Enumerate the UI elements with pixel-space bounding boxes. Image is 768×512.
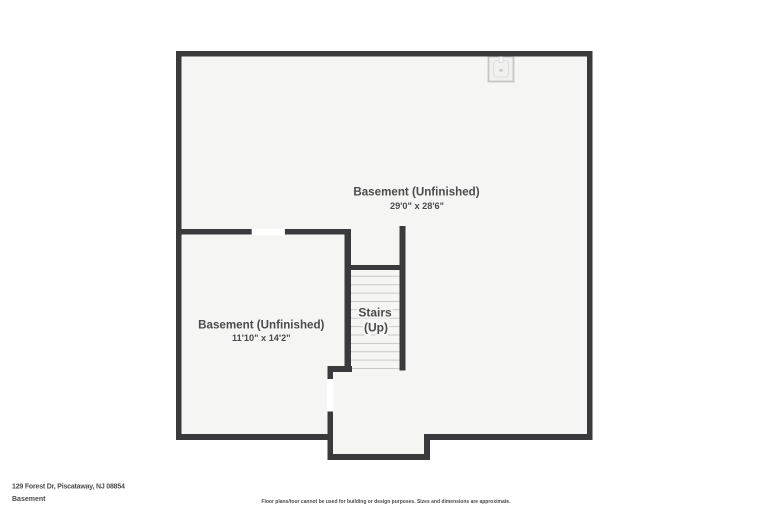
svg-text:Basement (Unfinished): Basement (Unfinished) [353,186,479,199]
svg-text:(Up): (Up) [364,321,388,335]
svg-text:Basement (Unfinished): Basement (Unfinished) [198,319,324,332]
svg-text:11'10" x 14'2": 11'10" x 14'2" [232,333,291,343]
svg-text:Stairs: Stairs [358,306,392,320]
svg-text:Basement: Basement [12,496,46,503]
svg-text:29'0" x 28'6": 29'0" x 28'6" [390,201,444,211]
svg-text:129 Forest Dr, Piscataway, NJ: 129 Forest Dr, Piscataway, NJ 08854 [12,483,125,490]
svg-text:Floor plans/tour cannot be use: Floor plans/tour cannot be used for buil… [261,499,511,505]
